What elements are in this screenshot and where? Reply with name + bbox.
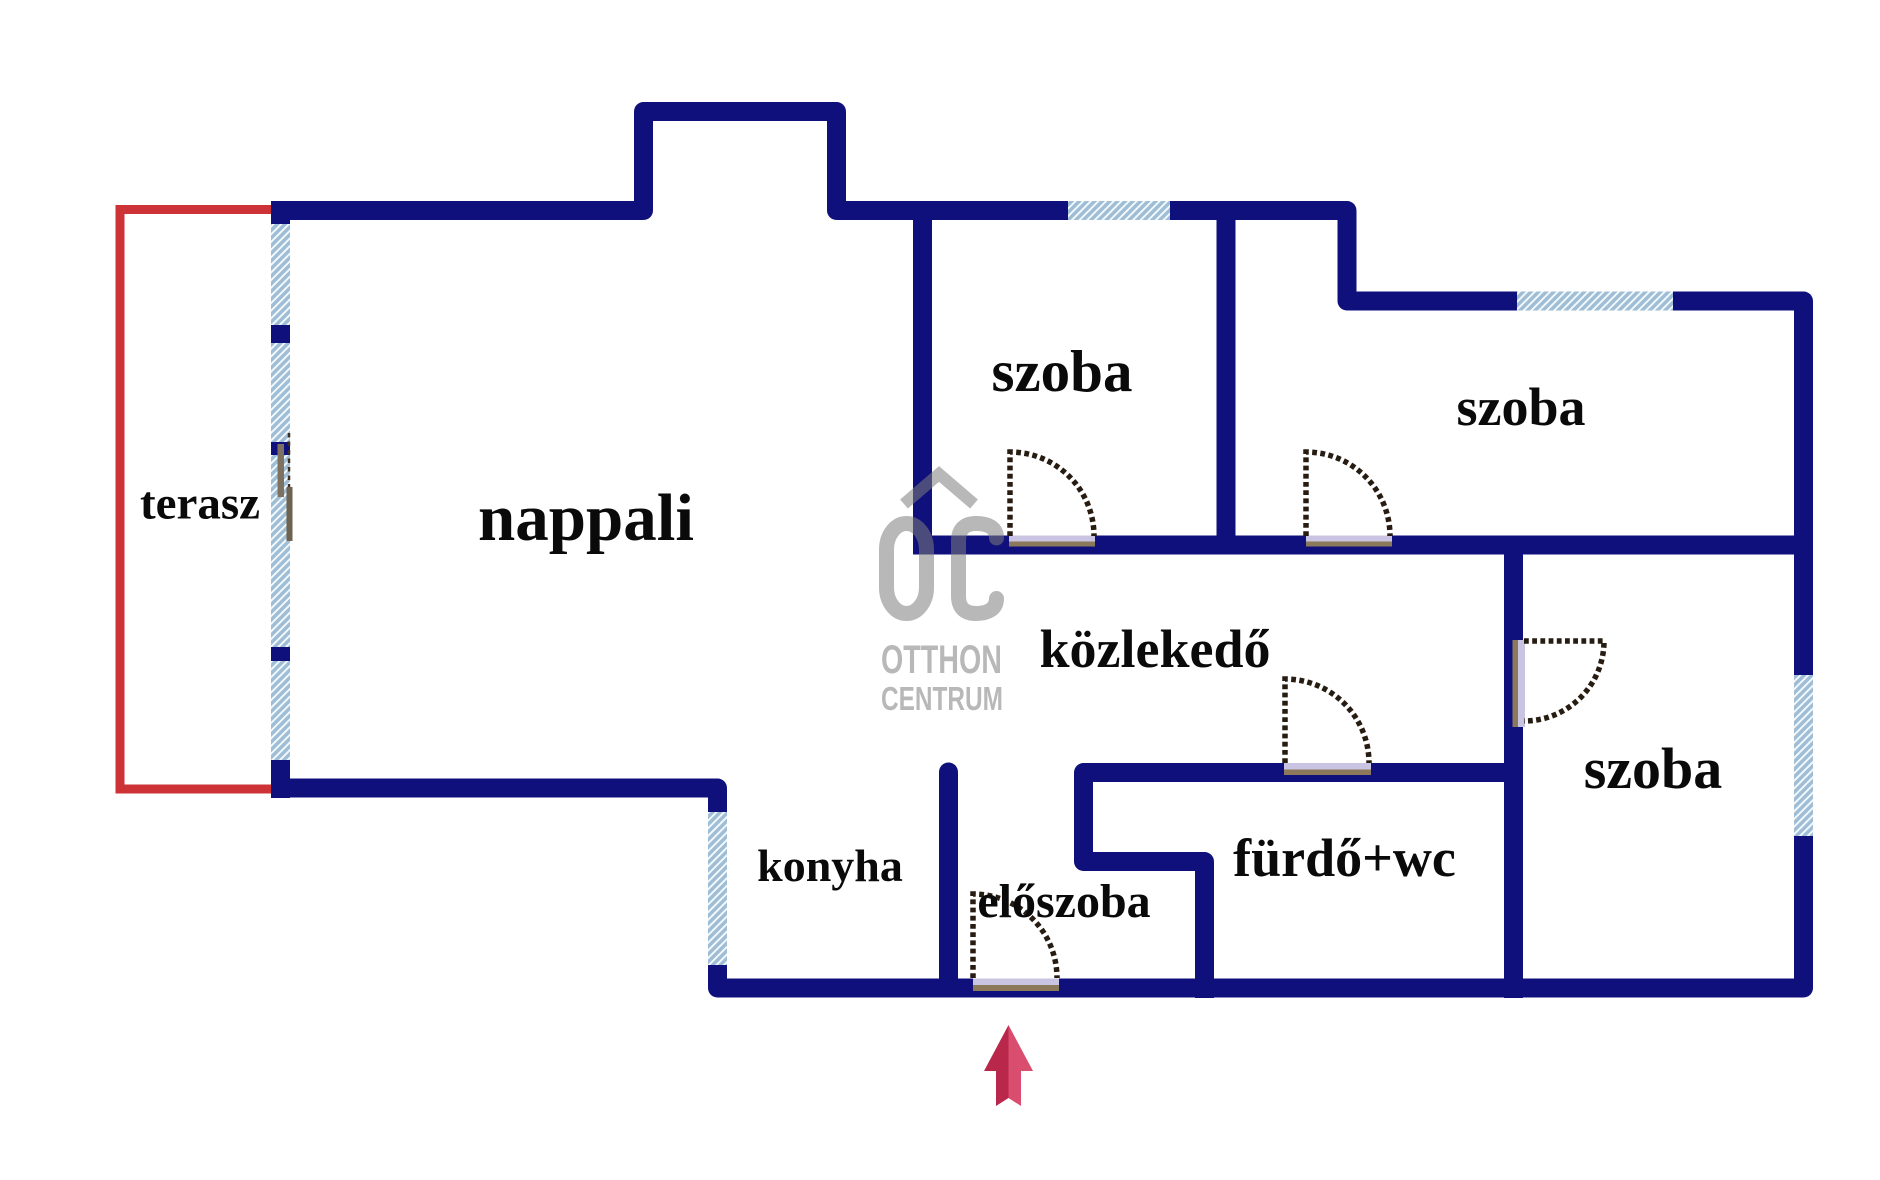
svg-text:nappali: nappali (478, 481, 694, 555)
svg-text:CENTRUM: CENTRUM (881, 680, 1003, 717)
svg-text:előszoba: előszoba (977, 875, 1150, 928)
svg-text:terasz: terasz (140, 478, 260, 530)
svg-text:OTTHON: OTTHON (881, 638, 1002, 682)
svg-text:szoba: szoba (1456, 377, 1585, 437)
svg-text:szoba: szoba (1584, 736, 1723, 801)
svg-text:szoba: szoba (992, 338, 1133, 404)
svg-text:konyha: konyha (757, 840, 903, 891)
svg-text:közlekedő: közlekedő (1039, 619, 1270, 679)
svg-text:fürdő+wc: fürdő+wc (1233, 828, 1456, 888)
